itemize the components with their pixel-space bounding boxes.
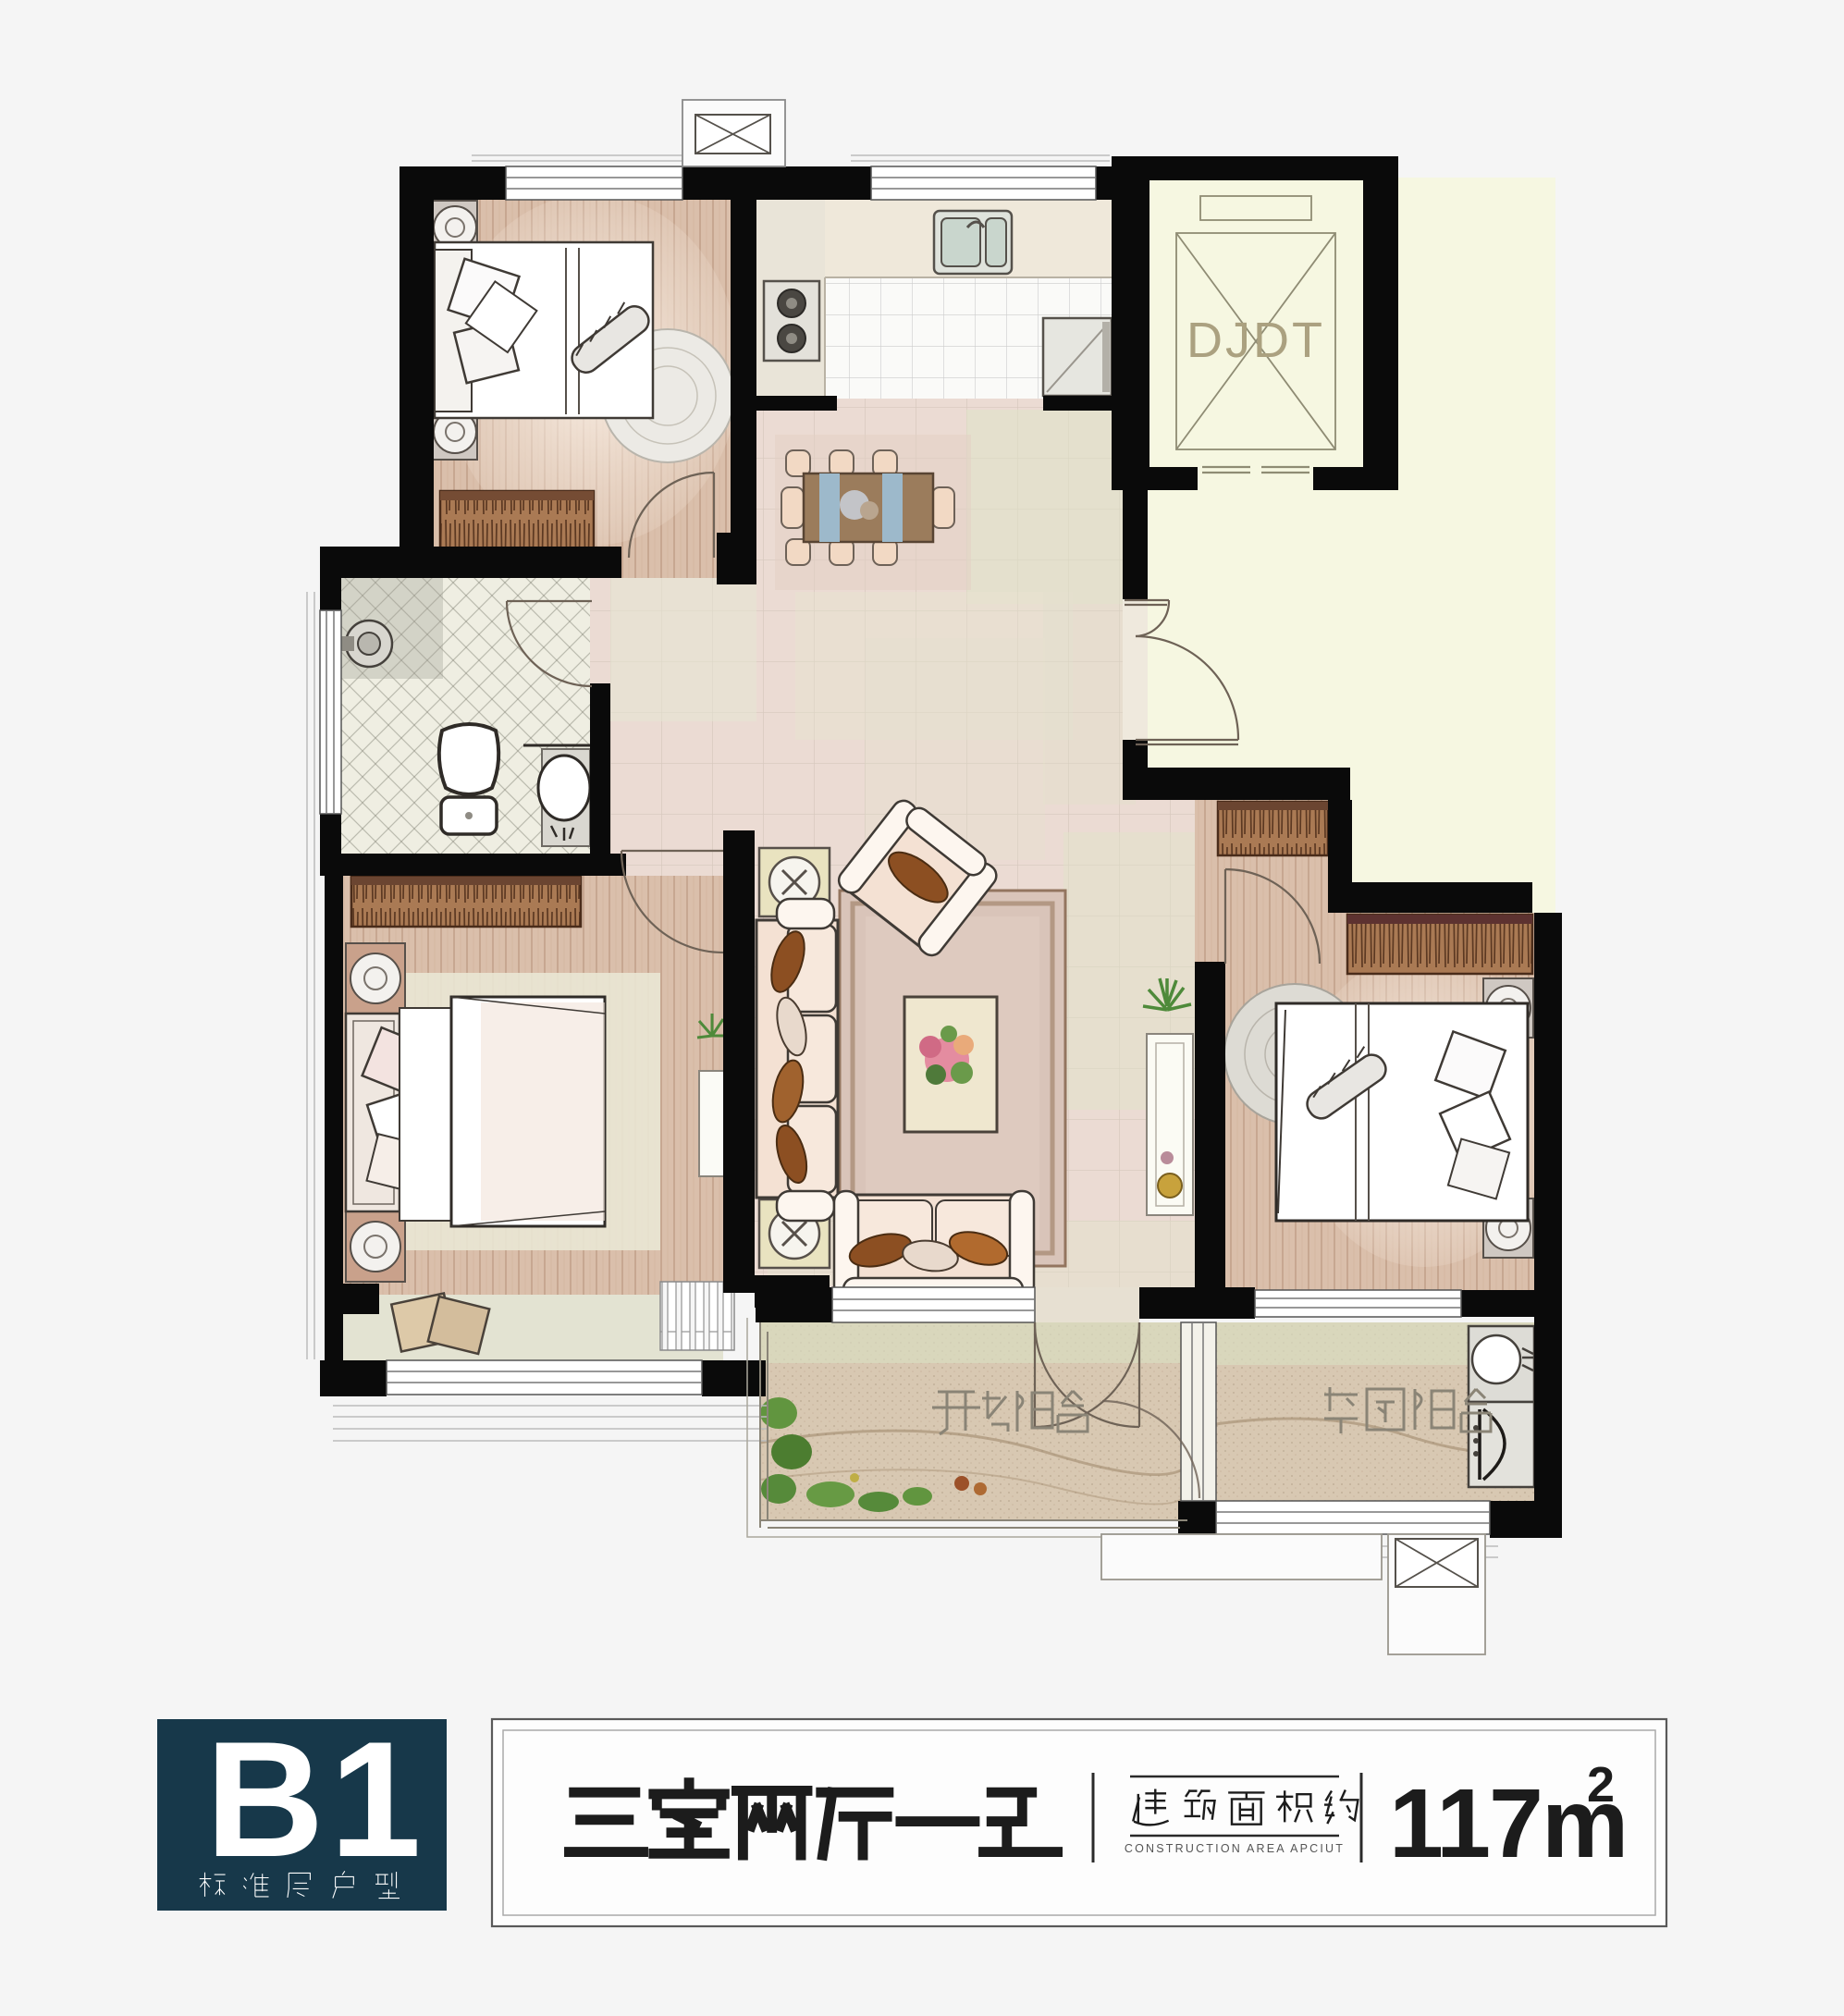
svg-text:CONSTRUCTION AREA APCIUT: CONSTRUCTION AREA APCIUT [1125,1842,1345,1855]
svg-text:DJDT: DJDT [1186,313,1325,368]
svg-text:B1: B1 [205,1707,427,1891]
svg-text:2: 2 [1587,1757,1615,1813]
